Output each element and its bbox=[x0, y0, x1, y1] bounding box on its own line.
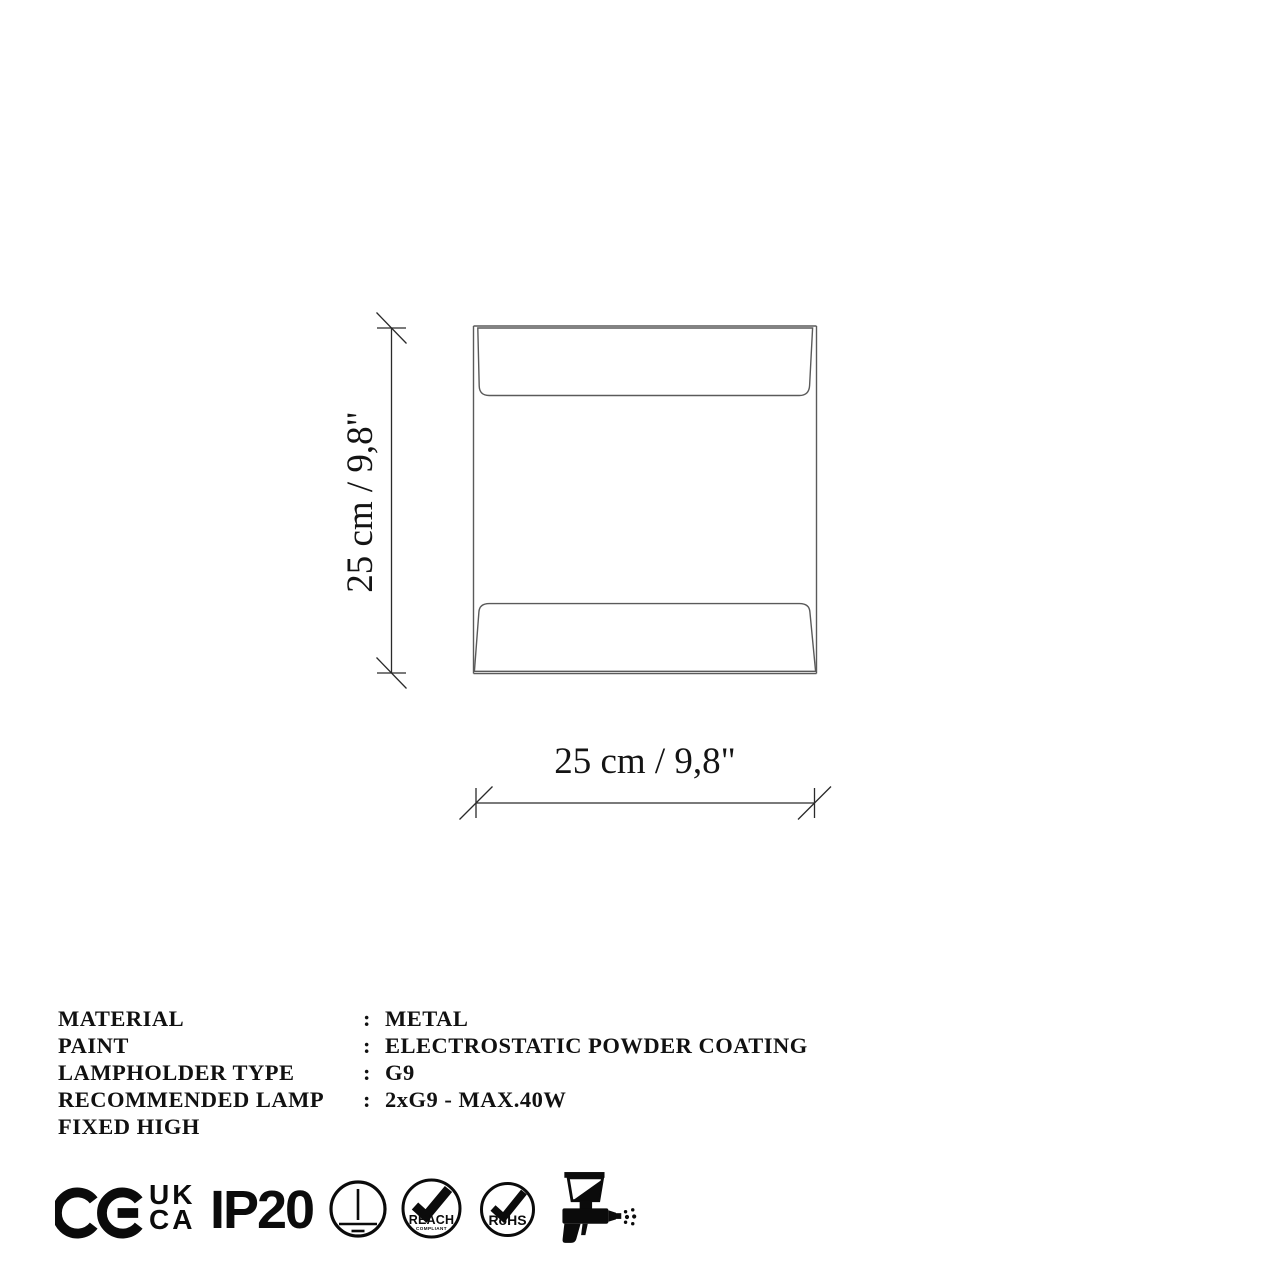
grounding-class1-icon bbox=[328, 1178, 388, 1240]
spec-label: RECOMMENDED LAMP bbox=[58, 1086, 363, 1113]
spec-value bbox=[385, 1113, 958, 1140]
reach-label: REACH bbox=[400, 1213, 463, 1227]
ip-rating-label: IP20 bbox=[210, 1180, 313, 1240]
spec-row-lampholder: LAMPHOLDER TYPE : G9 bbox=[58, 1059, 958, 1086]
spec-colon: : bbox=[363, 1032, 385, 1059]
ukca-line2: CA bbox=[149, 1204, 195, 1235]
spec-row-paint: PAINT : ELECTROSTATIC POWDER COATING bbox=[58, 1032, 958, 1059]
width-dimension-label: 25 cm / 9,8" bbox=[445, 740, 845, 784]
ce-mark-icon bbox=[55, 1182, 145, 1244]
spec-row-recommended-lamp: RECOMMENDED LAMP : 2xG9 - MAX.40W bbox=[58, 1086, 958, 1113]
spec-colon: : bbox=[363, 1086, 385, 1113]
spec-colon bbox=[363, 1113, 385, 1140]
spec-colon: : bbox=[363, 1005, 385, 1032]
reach-compliant-label: COMPLIANT bbox=[400, 1226, 463, 1231]
spec-label: PAINT bbox=[58, 1032, 363, 1059]
width-dimension-line bbox=[460, 787, 832, 820]
spec-row-fixed-high: FIXED HIGH bbox=[58, 1113, 958, 1140]
spec-label: FIXED HIGH bbox=[58, 1113, 363, 1140]
spec-colon: : bbox=[363, 1059, 385, 1086]
spec-label: LAMPHOLDER TYPE bbox=[58, 1059, 363, 1086]
spec-value: ELECTROSTATIC POWDER COATING bbox=[385, 1032, 958, 1059]
spec-label: MATERIAL bbox=[58, 1005, 363, 1032]
reach-compliant-icon: REACH COMPLIANT bbox=[400, 1177, 463, 1240]
spec-value: 2xG9 - MAX.40W bbox=[385, 1086, 958, 1113]
rohs-label: RoHS bbox=[479, 1212, 536, 1228]
height-dimension-label: 25 cm / 9,8" bbox=[339, 302, 383, 702]
ukca-mark: UKCA bbox=[149, 1183, 195, 1232]
spray-paint-gun-icon bbox=[550, 1168, 638, 1244]
lamp-body-outline bbox=[474, 326, 817, 674]
spec-row-material: MATERIAL : METAL bbox=[58, 1005, 958, 1032]
spec-table: MATERIAL : METAL PAINT : ELECTROSTATIC P… bbox=[58, 1005, 958, 1140]
spec-value: G9 bbox=[385, 1059, 958, 1086]
rohs-icon: RoHS bbox=[479, 1181, 536, 1238]
spec-value: METAL bbox=[385, 1005, 958, 1032]
